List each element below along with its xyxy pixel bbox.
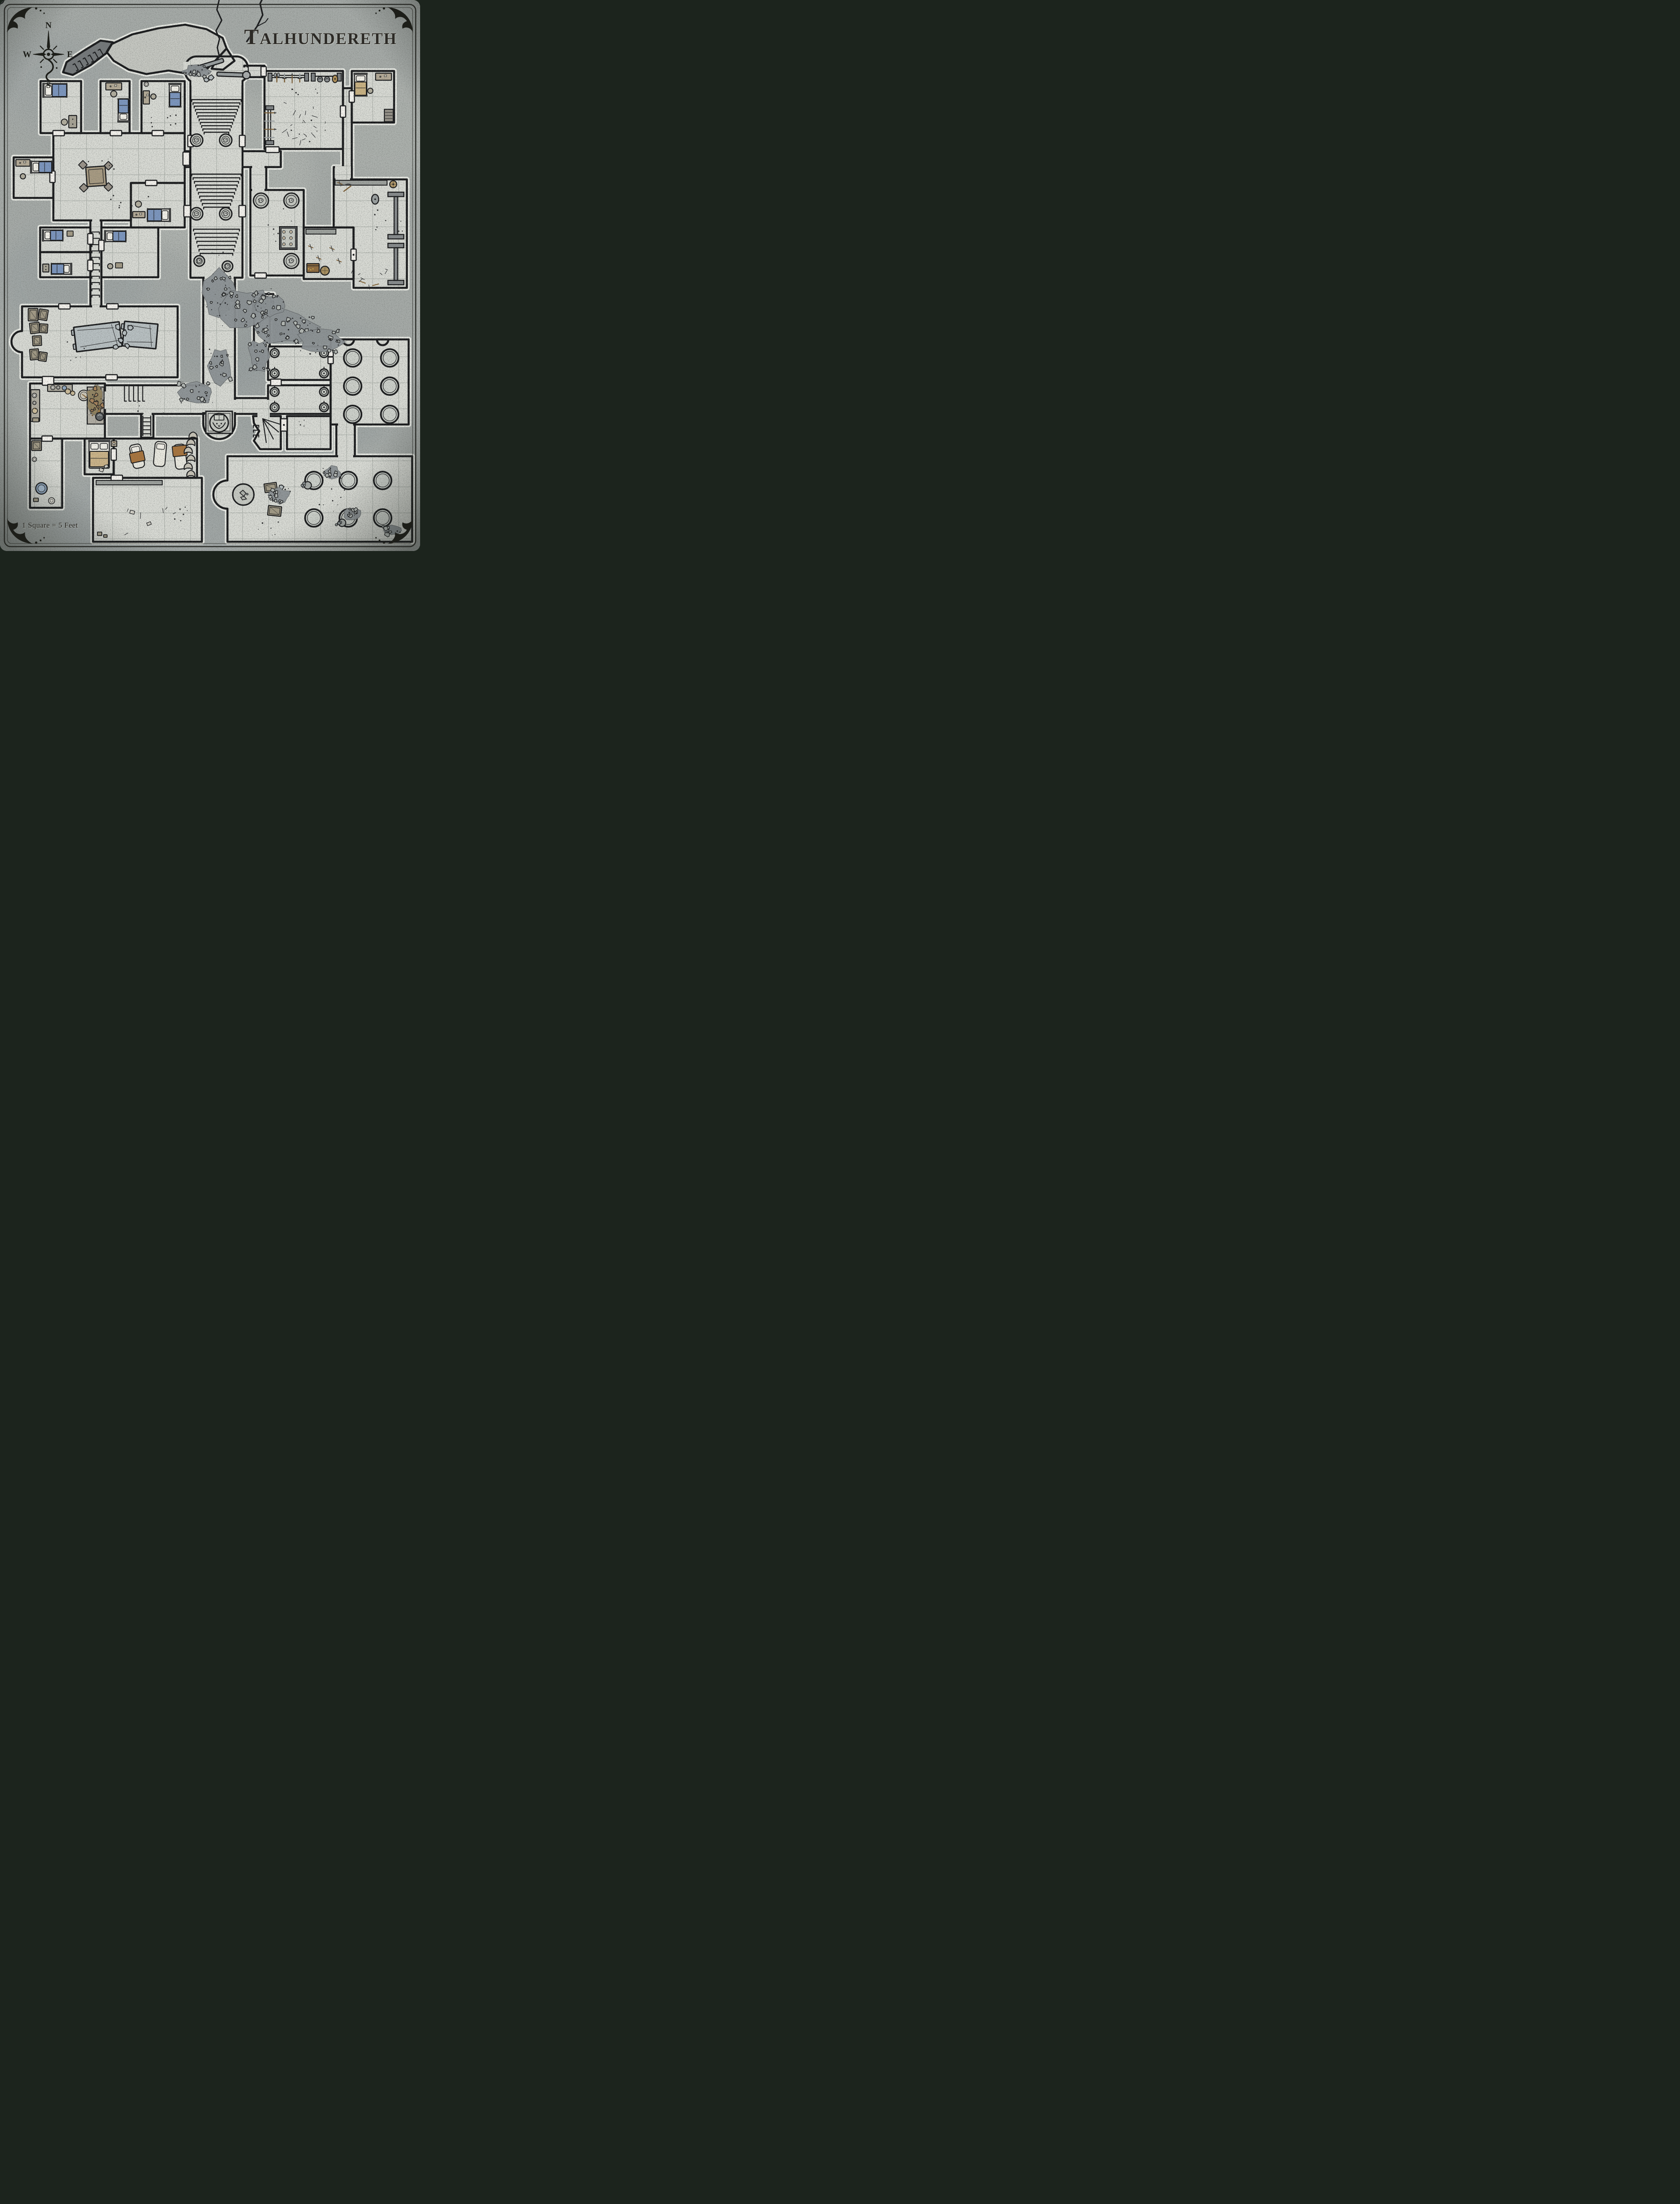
page-border-frame <box>0 0 420 551</box>
parchment-page: N W E S Talhundereth 1 Square = 5 Feet <box>0 0 420 551</box>
dungeon-map-page: { "header":{"title":"Talhundereth"}, "fo… <box>0 0 420 551</box>
corner-flourishes <box>7 7 413 544</box>
